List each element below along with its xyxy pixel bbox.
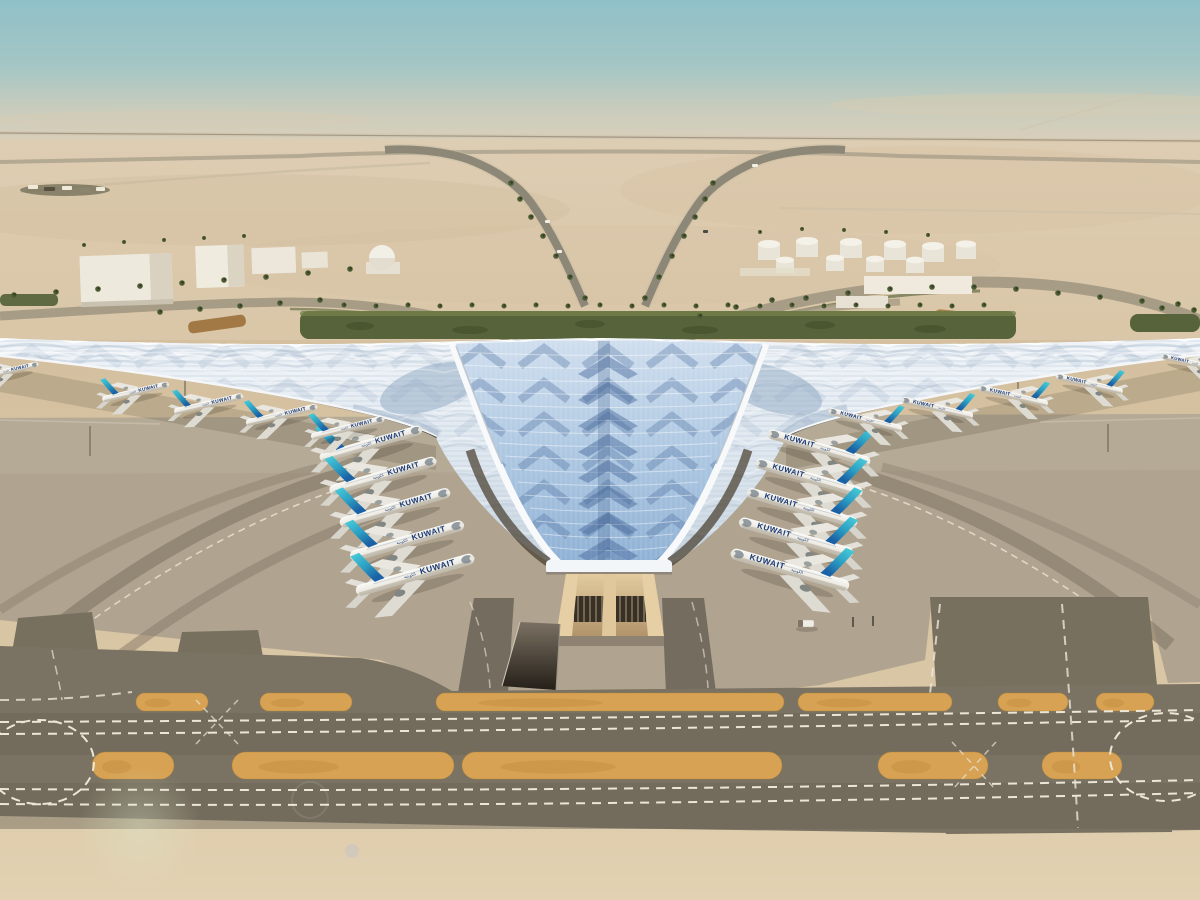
palm-tree	[697, 313, 703, 319]
palm-tree	[317, 297, 323, 303]
palm-tree	[1097, 294, 1103, 300]
palm-tree	[305, 270, 311, 276]
palm-tree	[758, 230, 762, 234]
palm-tree	[179, 280, 185, 286]
palm-tree	[95, 286, 101, 292]
palm-tree	[800, 227, 804, 231]
palm-tree	[517, 196, 523, 202]
scene-canvas: Aerial rendering of Kuwait International…	[0, 0, 1200, 900]
palm-tree	[733, 304, 739, 310]
palm-tree	[917, 302, 922, 307]
palm-tree	[221, 277, 227, 283]
palm-tree	[242, 234, 246, 238]
palm-tree	[237, 303, 243, 309]
palm-tree	[656, 274, 662, 280]
palm-tree	[769, 297, 775, 303]
palm-tree	[803, 295, 809, 301]
palm-tree	[1139, 298, 1145, 304]
airport-rendering: Aerial rendering of Kuwait International…	[0, 0, 1200, 900]
palm-tree	[582, 295, 588, 301]
palm-tree	[553, 253, 559, 259]
palm-tree	[885, 303, 890, 308]
palm-tree	[202, 236, 206, 240]
palm-tree	[508, 180, 514, 186]
palm-tree	[971, 284, 977, 290]
palm-tree	[842, 228, 846, 232]
palm-tree	[1159, 305, 1165, 311]
palm-tree	[469, 302, 474, 307]
palm-tree	[405, 302, 410, 307]
palm-tree	[710, 180, 716, 186]
palm-tree	[757, 303, 762, 308]
palm-tree	[1175, 301, 1181, 307]
palm-tree	[533, 302, 538, 307]
palm-tree	[501, 303, 506, 308]
valley-base-band	[546, 560, 672, 574]
palm-tree	[1191, 307, 1197, 313]
palm-tree	[692, 214, 698, 220]
palm-tree	[277, 300, 283, 306]
palm-tree	[373, 303, 378, 308]
palm-tree	[642, 295, 648, 301]
palm-tree	[1013, 286, 1019, 292]
palm-tree	[347, 266, 353, 272]
entrance-portal	[554, 574, 664, 646]
palm-tree	[981, 302, 986, 307]
palm-tree	[122, 240, 126, 244]
palm-tree	[949, 303, 954, 308]
palm-tree	[1055, 290, 1061, 296]
palm-tree	[597, 302, 602, 307]
palm-tree	[887, 286, 893, 292]
palm-tree	[540, 233, 546, 239]
palm-tree	[263, 274, 269, 280]
palm-tree	[725, 302, 730, 307]
palm-tree	[341, 302, 346, 307]
hedge-far-left	[0, 294, 58, 306]
palm-tree	[197, 306, 203, 312]
airside-building-right	[864, 276, 972, 294]
palm-tree	[82, 243, 86, 247]
palm-tree	[681, 233, 687, 239]
palm-tree	[437, 303, 442, 308]
palm-tree	[693, 303, 698, 308]
palm-tree	[53, 289, 59, 295]
palm-tree	[929, 284, 935, 290]
palm-tree	[528, 214, 534, 220]
haze-streak	[0, 110, 370, 130]
palm-tree	[157, 309, 163, 315]
palm-tree	[884, 230, 888, 234]
palm-tree	[702, 196, 708, 202]
palm-tree	[821, 303, 826, 308]
palm-tree	[669, 253, 675, 259]
palm-tree	[11, 292, 17, 298]
palm-tree	[845, 290, 851, 296]
palm-tree	[926, 233, 930, 237]
palm-tree	[789, 302, 794, 307]
palm-tree	[137, 283, 143, 289]
palm-tree	[567, 274, 573, 280]
palm-tree	[853, 302, 858, 307]
palm-tree	[629, 303, 634, 308]
palm-tree	[661, 302, 666, 307]
palm-tree	[162, 238, 166, 242]
palm-tree	[565, 303, 570, 308]
